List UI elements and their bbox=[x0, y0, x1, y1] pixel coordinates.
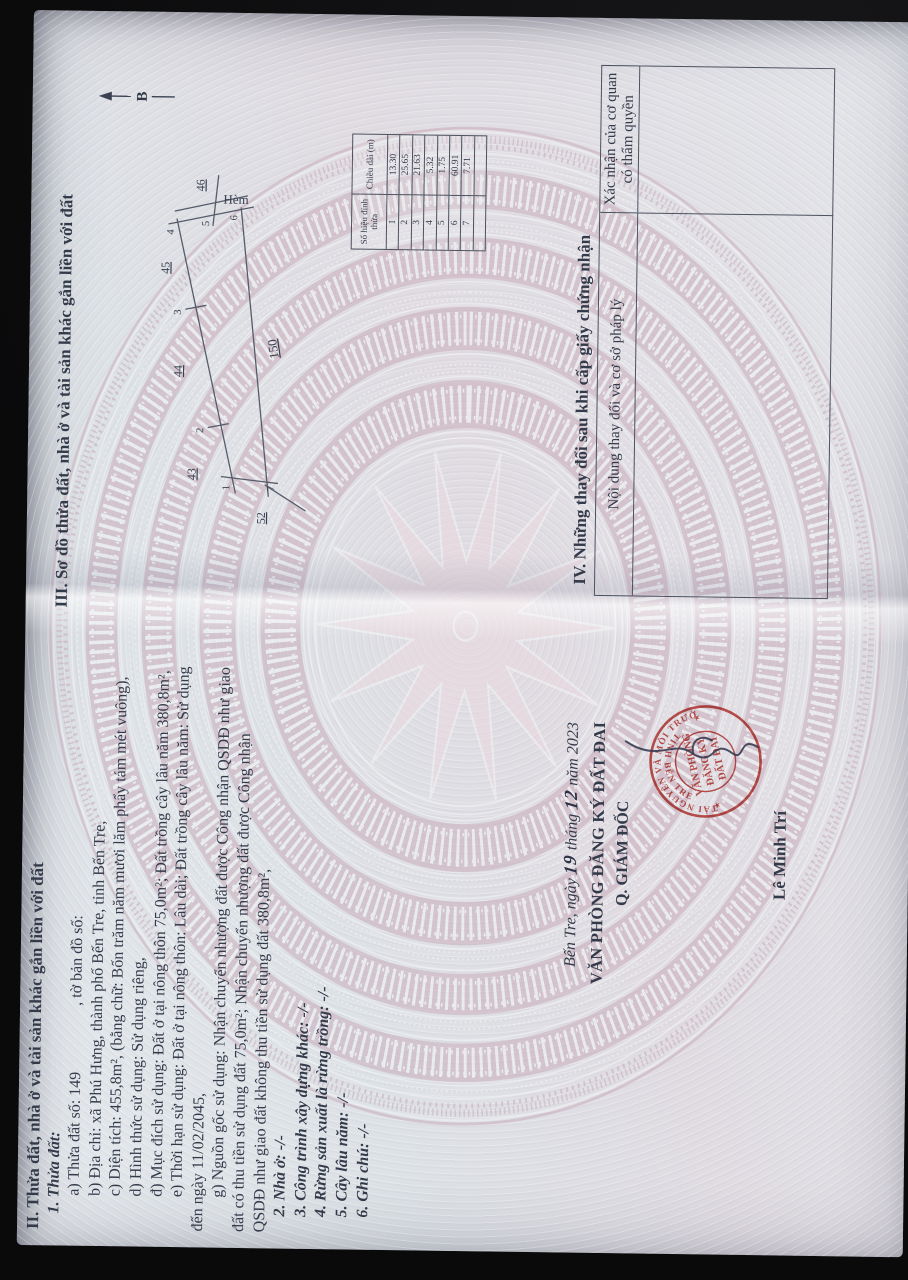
handwritten-day: 19 bbox=[559, 853, 581, 875]
neighbor-parcel-43: 43 bbox=[184, 468, 198, 480]
cell: 6 bbox=[449, 195, 461, 250]
vertex-1: 1 bbox=[221, 485, 232, 490]
changes-col2-header: Xác nhận của cơ quan có thẩm quyền bbox=[600, 66, 639, 213]
cell: 3 bbox=[411, 194, 423, 249]
blank-gap bbox=[80, 1006, 81, 1072]
vertex-6: 6 bbox=[229, 215, 240, 220]
parcel-sketch: 43 44 45 46 52 1 2 3 4 5 6 7 150 Hèm bbox=[147, 147, 338, 550]
parcel-number-text: a) Thửa đất số: 149 bbox=[66, 1072, 85, 1196]
parcel-number-label: 150 bbox=[264, 338, 282, 359]
section-2-block: II. Thửa đất, nhà ở và tài sản khác gắn … bbox=[23, 581, 382, 1234]
cell: 60.91 bbox=[449, 136, 461, 195]
handwritten-signature bbox=[619, 693, 771, 805]
photo-stage: II. Thửa đất, nhà ở và tài sản khác gắn … bbox=[0, 0, 908, 1280]
cell: 7 bbox=[461, 195, 473, 250]
neighbor-parcel-45: 45 bbox=[158, 262, 172, 274]
neighbor-parcel-44: 44 bbox=[171, 365, 185, 377]
vertex-5: 5 bbox=[201, 221, 212, 226]
signer-name: Lê Minh Trí bbox=[769, 767, 791, 943]
cell: 1.75 bbox=[437, 136, 449, 195]
cell: 7.71 bbox=[462, 136, 474, 195]
cell: 1 bbox=[387, 194, 399, 249]
alley-label: Hèm bbox=[223, 192, 248, 207]
certificate-page-spread: II. Thửa đất, nhà ở và tài sản khác gắn … bbox=[17, 10, 908, 1257]
cell bbox=[473, 195, 485, 250]
year-text: năm 2023 bbox=[564, 722, 582, 786]
vertex-4: 4 bbox=[166, 228, 177, 234]
north-label: B bbox=[135, 91, 151, 101]
cell: 21.63 bbox=[412, 135, 424, 194]
neighbor-parcel-52: 52 bbox=[254, 512, 268, 524]
map-sheet-text: , tờ bản đồ số: bbox=[68, 915, 86, 1006]
cell: 2 bbox=[399, 194, 411, 249]
changes-table: Nội dung thay đổi và cơ sở pháp lý Xác n… bbox=[594, 65, 835, 599]
neighbor-parcel-46: 46 bbox=[193, 179, 207, 191]
cell: 13.30 bbox=[387, 135, 399, 194]
date-line: Bến Tre, ngày 19 tháng 12 năm 2023 bbox=[558, 676, 584, 1012]
cell: 5.32 bbox=[425, 135, 437, 194]
cell: 4 bbox=[424, 194, 436, 249]
vertex-table-col1-header: Số hiệu đỉnh thửa bbox=[352, 193, 387, 248]
place-text: Bến Tre, ngày bbox=[562, 878, 580, 967]
vertex-7: 7 bbox=[266, 486, 277, 491]
vertex-length-table: Số hiệu đỉnh thửa Chiều dài (m) 113.30 2… bbox=[351, 133, 488, 251]
north-arrow: B bbox=[94, 56, 190, 127]
issuing-office: VĂN PHÒNG ĐĂNG KÝ ĐẤT ĐAI bbox=[586, 685, 611, 1021]
cell: 25.65 bbox=[400, 135, 412, 194]
section-3-heading: III. Sơ đồ thửa đất, nhà ở và tài sản kh… bbox=[52, 47, 80, 607]
vertex-table-col2-header: Chiều dài (m) bbox=[352, 134, 387, 193]
changes-col1-header: Nội dung thay đổi và cơ sở pháp lý bbox=[595, 212, 637, 595]
section-4-heading: IV. Những thay đổi sau khi cấp giấy chứn… bbox=[570, 54, 597, 585]
vertex-2: 2 bbox=[195, 428, 206, 433]
changes-col1-empty bbox=[633, 212, 833, 598]
cell: 5 bbox=[436, 195, 448, 250]
handwritten-month: 12 bbox=[560, 789, 582, 811]
table-row bbox=[473, 136, 486, 250]
month-word: tháng bbox=[563, 814, 581, 851]
cell bbox=[474, 136, 486, 195]
vertex-3: 3 bbox=[173, 309, 184, 314]
